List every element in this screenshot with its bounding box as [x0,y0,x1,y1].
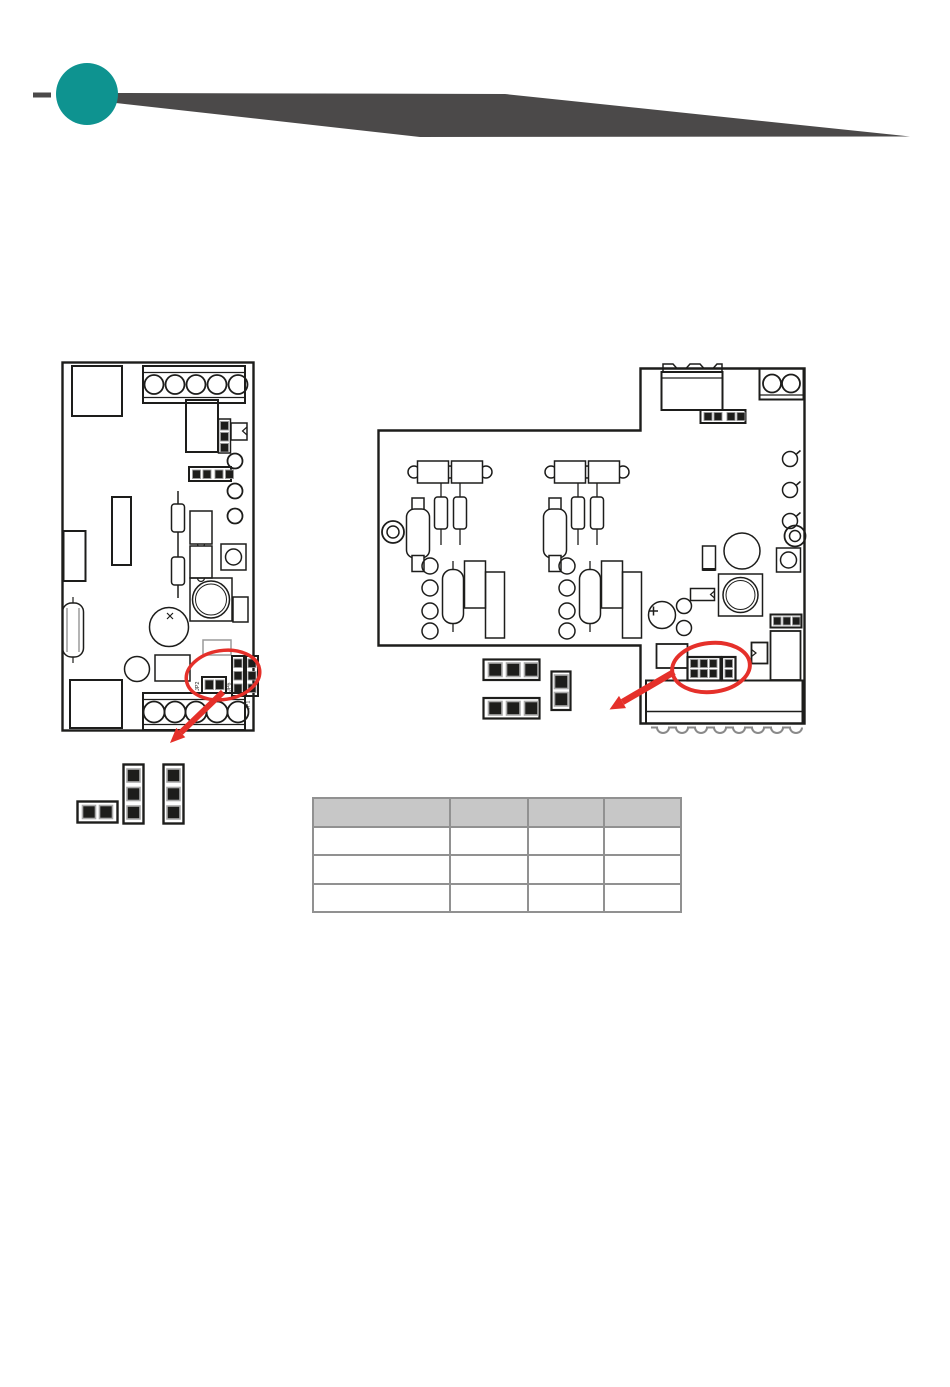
capacitor-circle [724,533,760,569]
jumper-3pin-horizontal [484,660,540,681]
jumper-3pin-horizontal [484,698,540,719]
test-point [228,509,243,524]
jumper-settings-table [312,797,682,913]
component-circle [677,599,692,614]
table-cell [450,884,528,913]
channel-components [559,558,642,639]
table-header-cell [313,798,450,827]
mounting-hole [382,521,404,543]
table-cell [313,827,450,856]
board-outline [379,369,805,724]
led-indicators [783,451,801,529]
header-swoosh [116,93,910,137]
component-notched-box [231,423,247,440]
component-circle [125,657,150,682]
jumper-detail-diagram [72,760,188,830]
table-cell [604,884,681,913]
fuse-pair [545,461,629,483]
table-cell [313,855,450,884]
resistor-pair [572,483,604,545]
transformer-block [70,680,122,728]
fuse-pair [408,461,492,483]
resistor [172,491,185,546]
fuse-holder [407,498,430,572]
table-cell [604,827,681,856]
terminal-block-top [662,364,723,410]
header-dash [33,93,51,98]
table-header-cell [604,798,681,827]
resistor-pair [435,483,467,545]
jumper-detail-pins [83,769,181,819]
table-row [313,827,681,856]
axial-capacitor [63,597,84,663]
jumper-label-jp2: JP2 [195,682,201,691]
diode-box [190,511,212,548]
table-cell [313,884,450,913]
component-circle [677,621,692,636]
header-accent-circle [56,63,118,125]
buzzer-circle [150,608,189,647]
fuse-holder [544,498,567,572]
diode-box [691,589,715,601]
component-notched-box [752,643,768,664]
capacitor-topview [719,574,763,616]
board-outline [63,363,254,731]
table-header-cell [528,798,604,827]
table-cell [528,827,604,856]
component-box [64,531,86,581]
table-row [313,884,681,913]
component-box [771,631,801,680]
button-box [777,548,801,572]
two-pin-connector [760,369,804,400]
jumper-block [688,657,736,681]
red-arrow-line [623,672,675,702]
control-board-diagram: JP2 JP6 JP1 [58,358,266,750]
test-point [228,484,243,499]
jumper-label-jp1: JP1 [246,701,252,710]
table-header-cell [450,798,528,827]
vertical-pin-header [219,419,231,453]
component-box [703,546,716,570]
jumper-2pin-vertical [552,672,571,711]
manual-page: JP2 JP6 JP1 [0,0,950,1387]
table-cell [528,884,604,913]
table-row [313,855,681,884]
diode-box [190,546,212,582]
transformer-block [72,366,122,416]
component-box [233,597,248,622]
mounting-hole [785,526,806,547]
table-cell [604,855,681,884]
relay-block [186,400,218,452]
table-cell [528,855,604,884]
electrolytic-capacitor [649,602,676,629]
pin-header-4 [189,467,234,481]
expansion-board-diagram [376,356,812,738]
channel-components [422,558,505,639]
table-cell [450,855,528,884]
resistor [172,546,185,598]
ic-chip [112,497,131,565]
table-cell [450,827,528,856]
jumper-label-jp6: JP6 [227,683,233,692]
capacitor-topview [190,578,232,621]
pin-header-4 [701,410,746,423]
pin-header-3 [771,615,802,628]
page-header-banner [0,0,950,170]
terminal-block-top [143,366,248,403]
led-box [221,544,246,570]
